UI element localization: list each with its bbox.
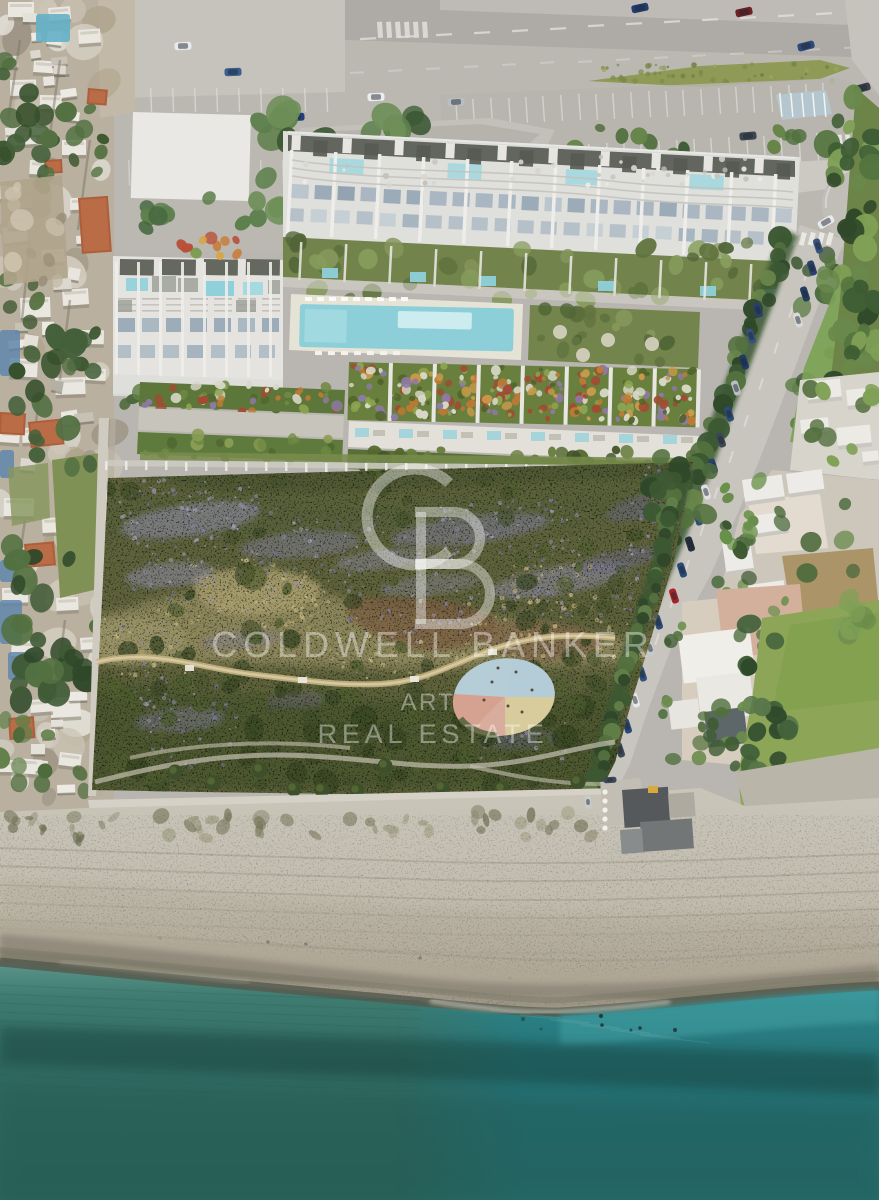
svg-text:ART: ART: [400, 689, 455, 716]
svg-text:REAL ESTATE: REAL ESTATE: [318, 719, 549, 749]
svg-text:COLDWELL BANKER: COLDWELL BANKER: [211, 624, 654, 665]
